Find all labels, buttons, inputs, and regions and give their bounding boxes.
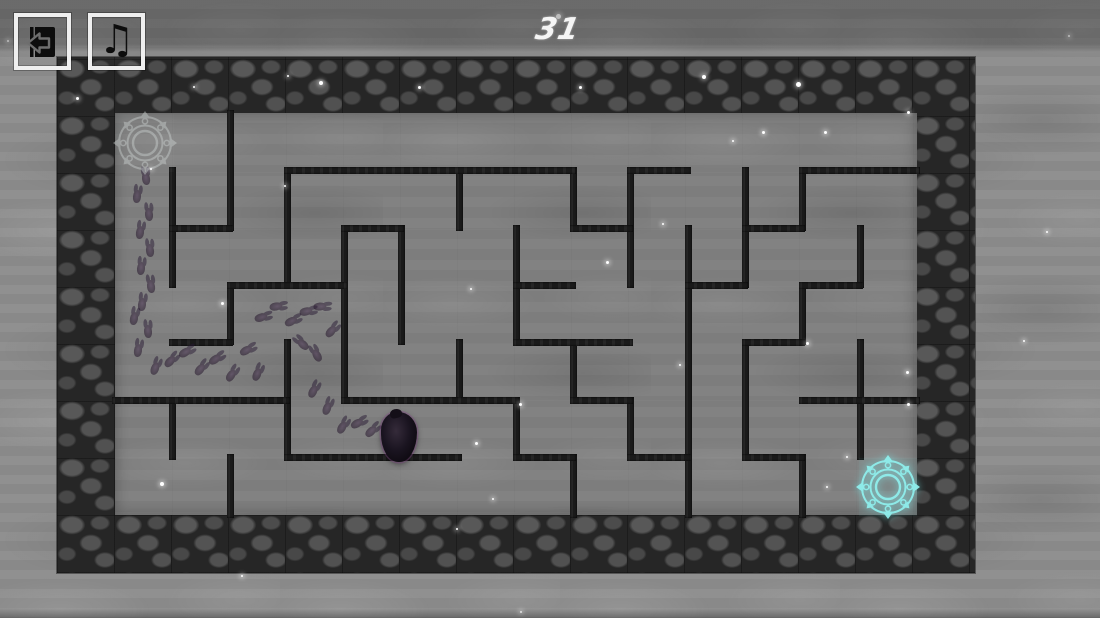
- maze-wall: [799, 397, 920, 404]
- maze-wall: [799, 167, 806, 231]
- maze-wall: [799, 454, 806, 518]
- maze-wall: [456, 339, 463, 403]
- snow-particle: [579, 86, 582, 89]
- maze-wall: [456, 167, 463, 231]
- snow-particle: [150, 168, 152, 170]
- maze-wall: [227, 454, 234, 518]
- snow-particle: [907, 403, 910, 406]
- snow-particle: [7, 40, 9, 42]
- snow-particle: [762, 131, 765, 134]
- maze-wall: [570, 167, 577, 231]
- snow-particle: [76, 97, 79, 100]
- maze-wall: [857, 225, 864, 288]
- snow-particle: [806, 342, 809, 345]
- snow-particle: [679, 364, 681, 366]
- snow-particle: [160, 482, 164, 486]
- snow-particle: [907, 111, 910, 114]
- maze-wall: [570, 225, 633, 232]
- maze-wall: [799, 167, 920, 174]
- snow-particle: [284, 185, 286, 187]
- snow-particle: [906, 371, 909, 374]
- maze-wall: [627, 454, 691, 461]
- snow-particle: [519, 403, 522, 406]
- maze-wall: [398, 225, 405, 345]
- snow-particle: [824, 131, 827, 134]
- snow-particle: [702, 75, 706, 79]
- snow-particle: [492, 498, 494, 500]
- maze-wall: [227, 282, 234, 345]
- goal-portal: [855, 454, 921, 520]
- maze-wall: [227, 110, 234, 231]
- snow-particle: [1068, 35, 1070, 37]
- music-button[interactable]: ♫: [88, 13, 145, 70]
- back-icon: [22, 21, 64, 63]
- snow-particle: [796, 82, 801, 87]
- snow-particle: [287, 75, 289, 77]
- maze-wall: [513, 282, 576, 289]
- maze-wall: [742, 225, 805, 232]
- maze-wall: [742, 454, 805, 461]
- snow-particle: [418, 86, 421, 89]
- snow-particle: [662, 223, 664, 225]
- maze-wall: [627, 397, 634, 460]
- snow-particle: [456, 528, 458, 530]
- snow-particle: [1023, 340, 1025, 342]
- snow-particle: [732, 140, 734, 142]
- maze-wall: [513, 454, 576, 461]
- level-indicator: 31: [533, 12, 584, 47]
- maze-wall: [227, 282, 347, 289]
- maze-wall: [284, 454, 462, 461]
- maze-wall: [513, 339, 633, 346]
- maze-wall: [169, 397, 176, 460]
- snow-particle: [475, 442, 478, 445]
- maze-wall: [341, 225, 348, 403]
- maze-wall: [570, 339, 577, 403]
- maze-wall: [112, 397, 290, 404]
- snow-particle: [241, 575, 243, 577]
- maze-wall: [341, 397, 519, 404]
- snow-particle: [826, 486, 828, 488]
- snow-particle: [520, 611, 522, 613]
- maze-wall: [284, 167, 576, 174]
- maze-wall: [685, 282, 748, 289]
- snow-particle: [606, 261, 609, 264]
- footprint: [144, 325, 153, 339]
- maze-wall: [169, 339, 233, 346]
- game-viewport[interactable]: ♫ 31: [0, 0, 1100, 618]
- maze-wall: [685, 225, 692, 518]
- maze-wall: [742, 339, 805, 346]
- maze-wall: [570, 397, 633, 404]
- maze-wall: [570, 454, 577, 518]
- maze-wall: [513, 397, 520, 460]
- music-note-icon: ♫: [99, 20, 135, 60]
- maze-wall: [341, 225, 404, 232]
- snow-particle: [1046, 231, 1048, 233]
- maze-wall: [169, 225, 233, 232]
- bottom-vignette: [0, 608, 1100, 618]
- maze-wall: [799, 282, 806, 345]
- maze-wall: [742, 339, 749, 460]
- snow-particle: [319, 81, 323, 85]
- maze-wall: [627, 167, 691, 174]
- maze-wall: [799, 282, 863, 289]
- start-portal: [112, 110, 178, 176]
- snow-particle: [846, 456, 848, 458]
- snow-particle: [193, 86, 195, 88]
- snow-particle: [470, 288, 472, 290]
- snow-particle: [221, 302, 224, 305]
- back-button[interactable]: [14, 13, 71, 70]
